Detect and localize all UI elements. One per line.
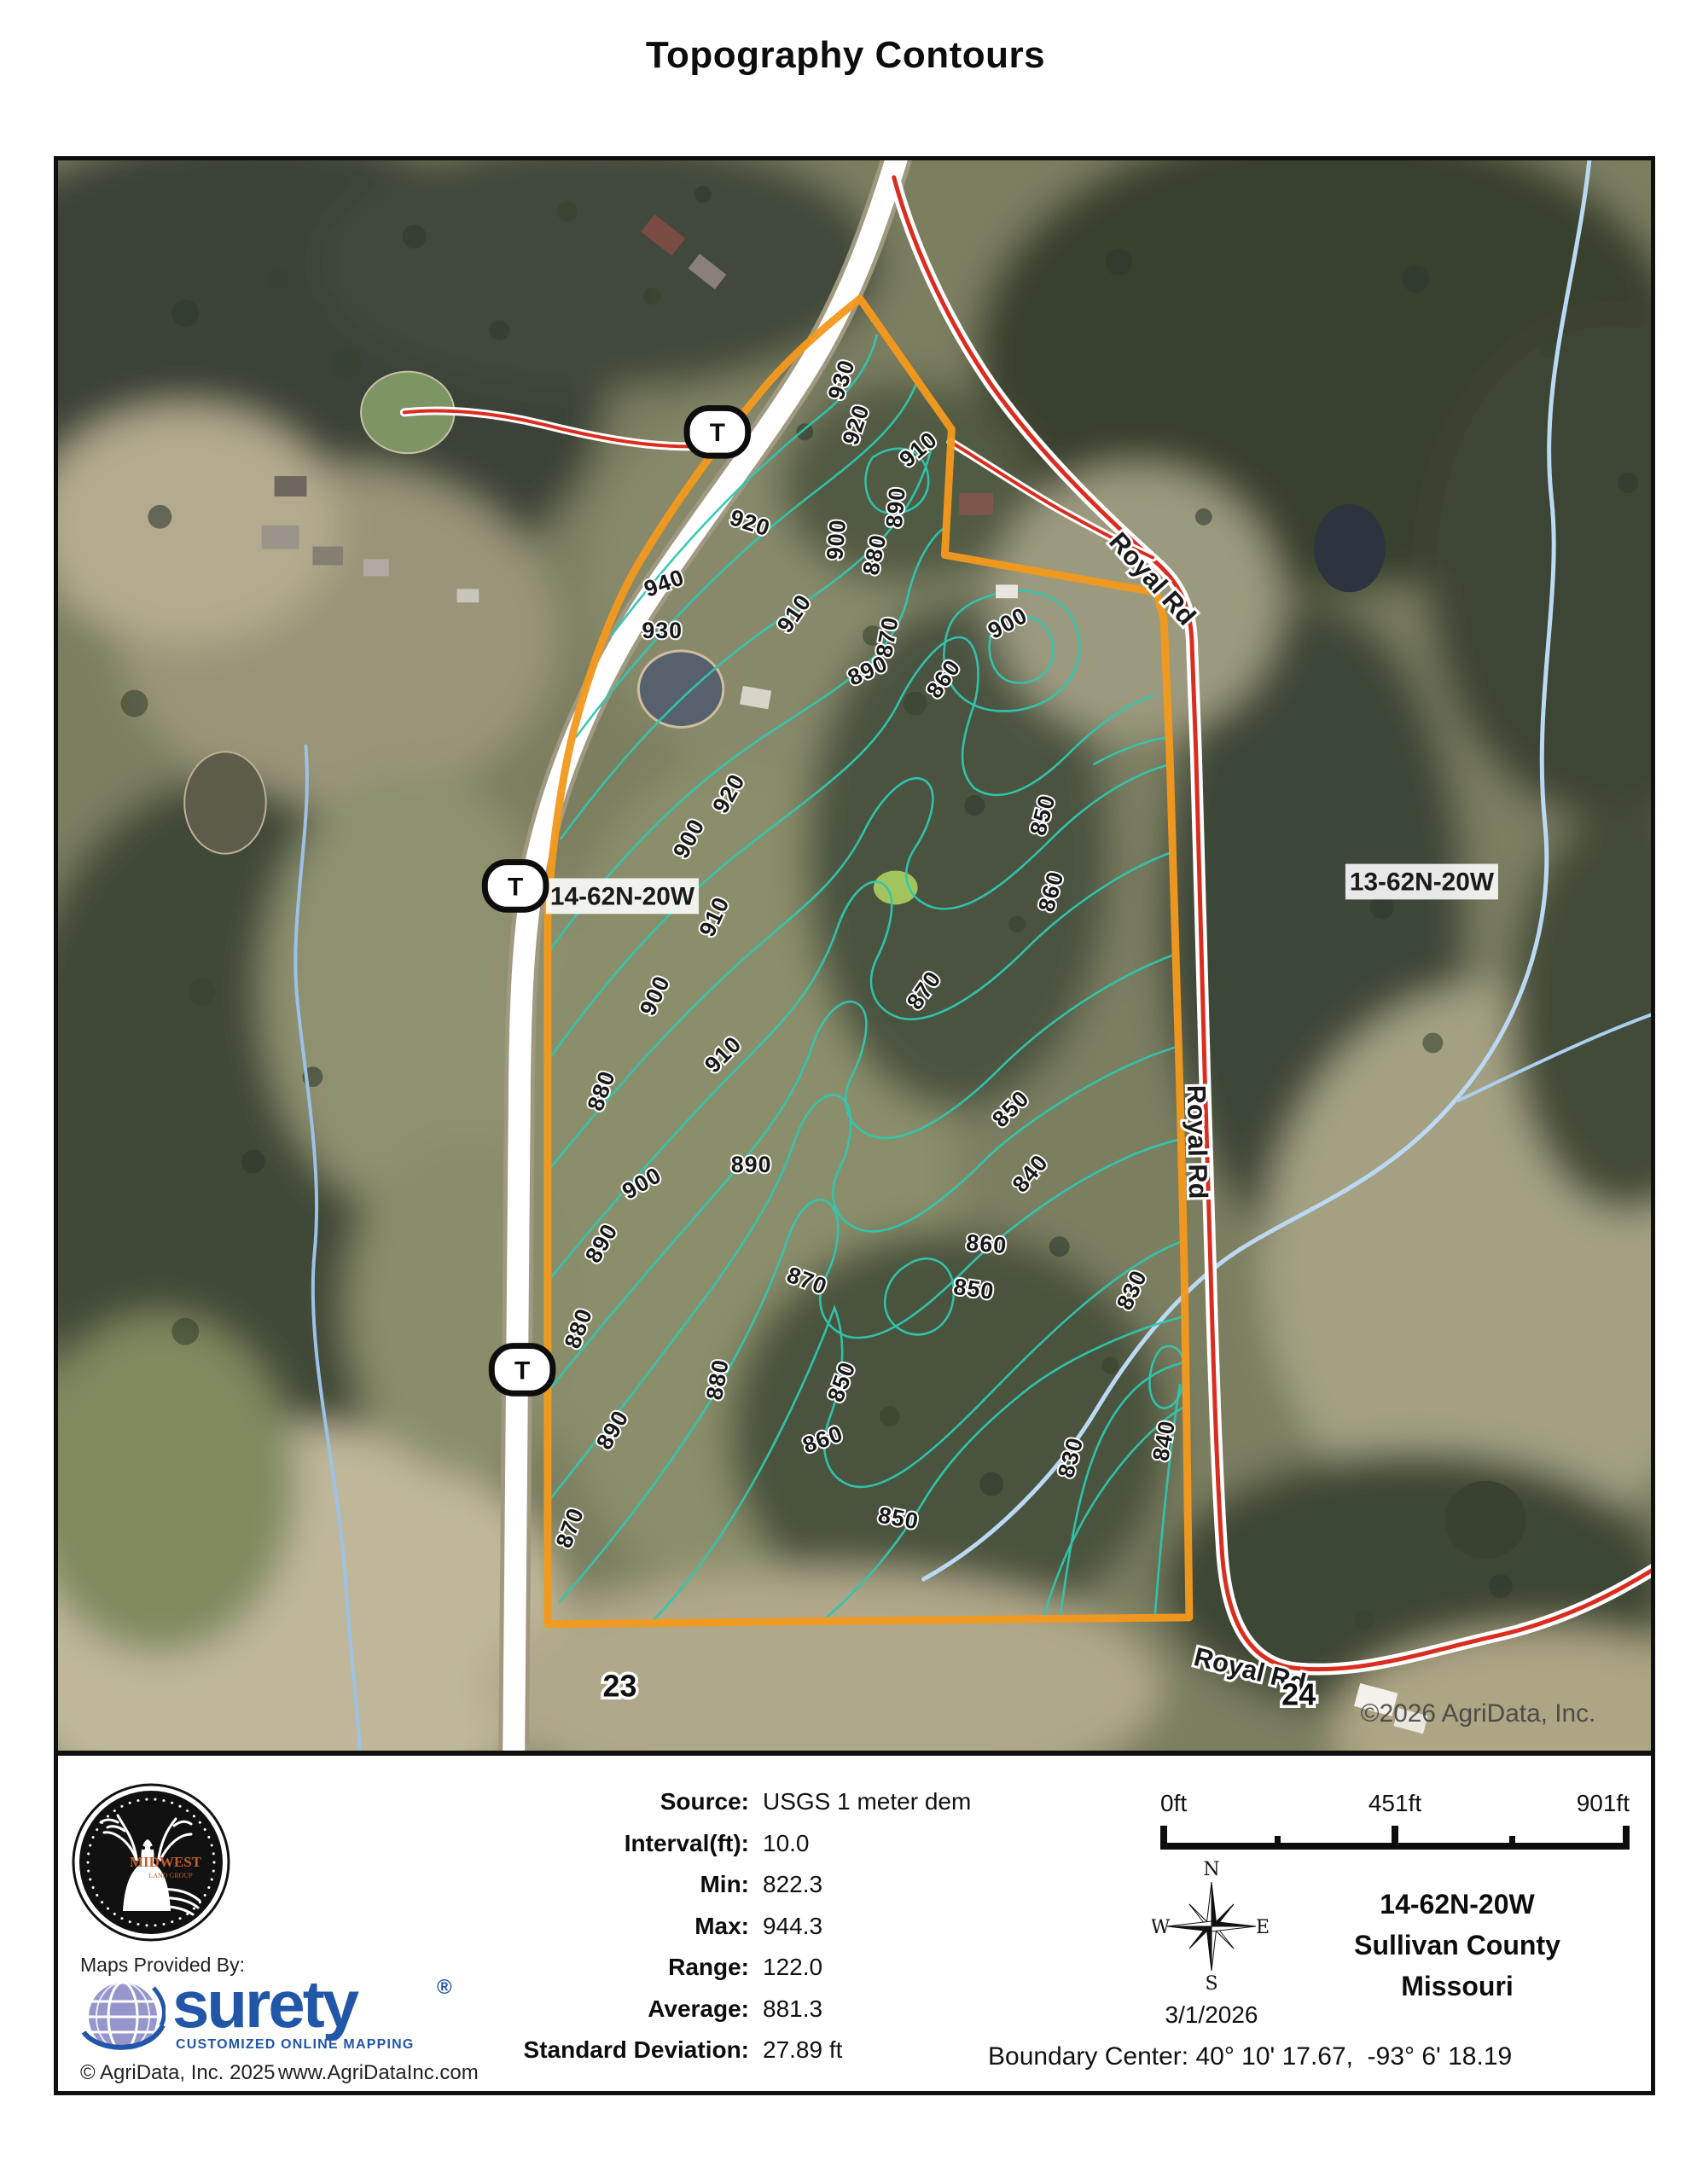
- stat-row-range: Range:122.0: [374, 1947, 971, 1989]
- stat-row-max: Max:944.3: [374, 1906, 971, 1948]
- svg-text:13-62N-20W: 13-62N-20W: [1350, 868, 1495, 896]
- section-label-inside: 14-62N-20W: [546, 878, 699, 914]
- elevation-stats: Source:USGS 1 meter dem Interval(ft):10.…: [374, 1781, 971, 2071]
- map-canvas: 9309209108909209008809108708908609009409…: [54, 156, 1655, 1755]
- svg-text:T: T: [508, 873, 523, 901]
- scale-mid-label: 451ft: [1368, 1790, 1421, 1817]
- svg-text:N: N: [1203, 1859, 1219, 1880]
- page-title: Topography Contours: [0, 34, 1691, 77]
- county: Sullivan County: [1312, 1925, 1602, 1966]
- contour-elevation-label: 890: [731, 1152, 772, 1177]
- aerial-map: 9309209108909209008809108708908609009409…: [58, 160, 1651, 1751]
- scale-start-label: 0ft: [1160, 1790, 1187, 1817]
- compass-rose-icon: N S W E: [1152, 1856, 1271, 1993]
- section-number-24: 24: [1281, 1677, 1316, 1711]
- midwest-land-group-logo: MIDWEST LAND GROUP: [70, 1781, 232, 1943]
- stat-row-min: Min:822.3: [374, 1864, 971, 1906]
- midwest-wordmark: MIDWEST: [130, 1854, 202, 1870]
- scale-bar-graphic: [1160, 1819, 1630, 1853]
- svg-text:14-62N-20W: 14-62N-20W: [550, 882, 695, 910]
- stat-row-interval: Interval(ft):10.0: [374, 1823, 971, 1865]
- svg-text:E: E: [1256, 1917, 1270, 1938]
- svg-text:W: W: [1152, 1917, 1171, 1938]
- township-range: 14-62N-20W: [1312, 1884, 1602, 1925]
- location-block: 14-62N-20W Sullivan County Missouri: [1312, 1884, 1602, 2007]
- surety-wordmark: surety: [172, 1966, 357, 2043]
- midwest-subtitle: LAND GROUP: [148, 1872, 193, 1879]
- highway-marker-t-middle: T: [485, 863, 546, 910]
- state: Missouri: [1312, 1966, 1602, 2007]
- contour-elevation-label: 890: [881, 486, 910, 529]
- section-number-23: 23: [603, 1669, 637, 1703]
- stat-row-stddev: Standard Deviation:27.89 ft: [374, 2030, 971, 2071]
- boundary-center-coordinates: Boundary Center: 40° 10' 17.67, -93° 6' …: [988, 2042, 1512, 2071]
- report-page: Topography Contours: [0, 0, 1691, 2184]
- svg-text:T: T: [710, 419, 725, 447]
- stat-row-average: Average:881.3: [374, 1989, 971, 2030]
- svg-text:S: S: [1205, 1973, 1217, 1993]
- road-label-royal-rd-middle: Royal Rd: [1182, 1085, 1213, 1199]
- surety-globe-icon: [80, 1976, 166, 2061]
- contour-elevation-label: 900: [822, 518, 851, 561]
- scale-end-label: 901ft: [1577, 1790, 1630, 1817]
- contour-elevation-label: 860: [965, 1229, 1008, 1258]
- info-panel: MIDWEST LAND GROUP Maps Provided By: sur…: [54, 1751, 1655, 2095]
- highway-marker-t-north: T: [687, 408, 748, 456]
- map-date: 3/1/2026: [1152, 2001, 1271, 2029]
- section-label-east: 13-62N-20W: [1345, 864, 1498, 900]
- highway-marker-t-south: T: [491, 1346, 553, 1394]
- map-watermark: ©2026 AgriData, Inc.: [1361, 1699, 1596, 1728]
- scale-bar: 0ft 451ft 901ft: [1160, 1790, 1630, 1857]
- agridata-copyright: © AgriData, Inc. 2025: [80, 2061, 275, 2085]
- svg-text:T: T: [514, 1356, 530, 1385]
- contour-elevation-label: 930: [642, 618, 683, 643]
- stat-row-source: Source:USGS 1 meter dem: [374, 1781, 971, 1823]
